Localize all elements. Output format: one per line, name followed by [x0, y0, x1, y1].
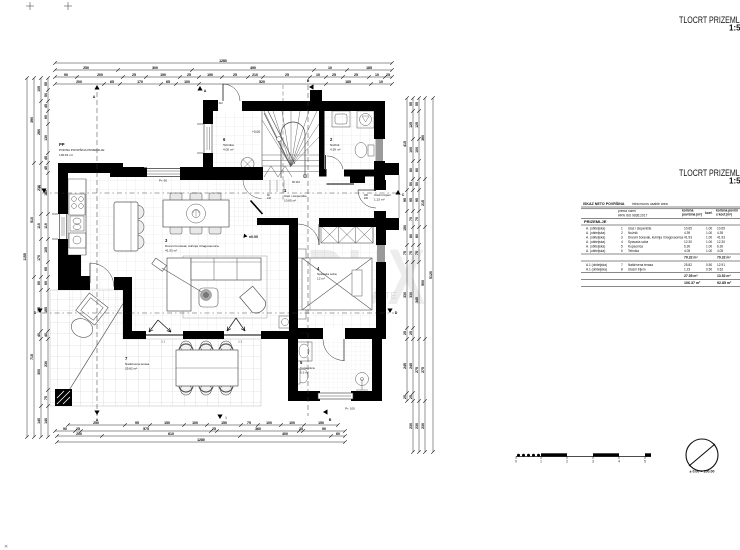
svg-text:1: 1 — [540, 460, 542, 464]
svg-text:±0.00: ±0.00 — [249, 235, 258, 239]
svg-text:4.39: 4.39 — [717, 231, 723, 235]
svg-text:75: 75 — [415, 251, 419, 255]
svg-text:1280: 1280 — [219, 59, 227, 63]
svg-text:90 210: 90 210 — [292, 180, 300, 184]
svg-text:Natkrivena terasa: Natkrivena terasa — [628, 263, 653, 267]
svg-text:0.62: 0.62 — [717, 268, 723, 272]
svg-text:± 0.00 = 100.00: ± 0.00 = 100.00 — [689, 470, 714, 474]
svg-text:55: 55 — [415, 102, 419, 106]
svg-text:105: 105 — [44, 247, 48, 253]
svg-text:C: C — [402, 193, 405, 197]
svg-text:intra muros usable area: intra muros usable area — [632, 202, 668, 206]
svg-text:230: 230 — [37, 185, 41, 191]
svg-text:1.23: 1.23 — [684, 268, 690, 272]
svg-text:25: 25 — [332, 73, 336, 77]
svg-text:170: 170 — [37, 255, 41, 261]
svg-text:4: 4 — [621, 240, 623, 244]
svg-text:A. (obiteljska): A. (obiteljska) — [586, 249, 605, 253]
svg-text:50: 50 — [44, 93, 48, 97]
svg-text:190: 190 — [207, 73, 213, 77]
svg-text:1.00: 1.00 — [706, 249, 712, 253]
svg-text:Tehnika: Tehnika — [223, 143, 234, 147]
svg-text:6.30: 6.30 — [717, 245, 723, 249]
svg-text:215: 215 — [421, 200, 425, 206]
svg-text:65: 65 — [44, 267, 48, 271]
svg-text:575: 575 — [143, 427, 149, 431]
svg-text:10: 10 — [375, 73, 379, 77]
svg-text:360: 360 — [255, 427, 261, 431]
svg-text:275: 275 — [421, 367, 425, 373]
svg-text:245: 245 — [403, 363, 407, 369]
svg-text:4.39: 4.39 — [684, 231, 690, 235]
svg-text:A. (obiteljska): A. (obiteljska) — [586, 245, 605, 249]
svg-text:6.3 m²: 6.3 m² — [300, 371, 309, 375]
svg-text:Tehnika: Tehnika — [628, 249, 639, 253]
svg-text:40: 40 — [37, 333, 41, 337]
svg-text:ISKAZ NETO POVRŠINA: ISKAZ NETO POVRŠINA — [583, 201, 625, 206]
svg-text:Ulaz i stepenište: Ulaz i stepenište — [284, 194, 307, 198]
svg-text:Natkrivena terasa: Natkrivena terasa — [125, 362, 150, 366]
svg-text:75: 75 — [44, 396, 48, 400]
svg-text:25: 25 — [233, 73, 237, 77]
svg-text:100: 100 — [184, 80, 190, 84]
svg-text:80: 80 — [409, 234, 413, 238]
svg-text:12.30: 12.30 — [684, 240, 692, 244]
svg-text:25: 25 — [409, 395, 413, 399]
svg-text:45: 45 — [44, 166, 48, 170]
svg-text:A. (obiteljska): A. (obiteljska) — [586, 240, 605, 244]
svg-text:A. (obiteljska): A. (obiteljska) — [586, 231, 605, 235]
svg-text:B: B — [329, 418, 332, 422]
svg-text:PP: PP — [59, 142, 65, 147]
svg-text:275: 275 — [415, 367, 419, 373]
svg-text:100: 100 — [266, 421, 272, 425]
svg-text:10.65 m²: 10.65 m² — [284, 199, 296, 203]
svg-text:✕: ✕ — [4, 544, 8, 550]
svg-text:150: 150 — [164, 421, 170, 425]
svg-text:150: 150 — [403, 225, 407, 231]
svg-text:500: 500 — [421, 280, 425, 286]
svg-text:Spavaća soba: Spavaća soba — [317, 272, 337, 276]
svg-text:koef.: koef. — [705, 211, 713, 215]
svg-text:25: 25 — [354, 73, 358, 77]
svg-text:170: 170 — [137, 80, 143, 84]
svg-text:2: 2 — [621, 231, 623, 235]
svg-text:1.00: 1.00 — [706, 227, 712, 231]
svg-text:Ulaz i stepenište: Ulaz i stepenište — [628, 227, 652, 231]
svg-text:1:50: 1:50 — [729, 24, 740, 33]
svg-text:200: 200 — [76, 432, 82, 436]
svg-text:280: 280 — [37, 129, 41, 135]
svg-text:510: 510 — [30, 217, 34, 223]
svg-text:80: 80 — [409, 168, 413, 172]
svg-text:715: 715 — [30, 354, 34, 360]
svg-text:1155: 1155 — [23, 253, 27, 261]
svg-text:415: 415 — [403, 141, 407, 147]
svg-text:110: 110 — [44, 223, 48, 229]
svg-text:230: 230 — [44, 361, 48, 367]
svg-text:5120: 5120 — [429, 271, 433, 279]
svg-text:240: 240 — [364, 197, 369, 200]
svg-text:100: 100 — [415, 147, 419, 153]
svg-text:HRN ISO 9836:2017: HRN ISO 9836:2017 — [618, 214, 647, 218]
svg-text:5: 5 — [621, 245, 623, 249]
svg-text:185: 185 — [37, 307, 41, 313]
svg-text:110: 110 — [37, 223, 41, 229]
svg-text:230: 230 — [421, 423, 425, 429]
svg-text:80: 80 — [415, 168, 419, 172]
svg-text:B: B — [307, 79, 310, 83]
svg-text:1.00: 1.00 — [706, 245, 712, 249]
svg-text:610: 610 — [168, 432, 174, 436]
svg-text:25: 25 — [285, 73, 289, 77]
svg-text:Ulazni trijem: Ulazni trijem — [628, 268, 646, 272]
svg-text:345: 345 — [415, 297, 419, 303]
svg-text:390: 390 — [30, 117, 34, 123]
svg-text:A: A — [93, 95, 96, 99]
svg-text:PODNA POVRŠINA PRIZEMLJE: PODNA POVRŠINA PRIZEMLJE — [59, 147, 104, 152]
svg-text:185: 185 — [44, 190, 48, 196]
svg-text:10: 10 — [316, 73, 320, 77]
svg-text:1: 1 — [225, 416, 227, 420]
svg-text:s koef.(m²): s koef.(m²) — [716, 213, 732, 217]
svg-text:0.50: 0.50 — [706, 268, 712, 272]
svg-text:4.05 m²: 4.05 m² — [223, 148, 234, 152]
svg-text:A: A — [204, 89, 207, 93]
svg-text:90: 90 — [322, 427, 326, 431]
svg-text:490: 490 — [250, 66, 256, 70]
svg-text:površina (m²): površina (m²) — [682, 213, 702, 217]
svg-text:+0.00: +0.00 — [252, 130, 260, 134]
svg-text:100: 100 — [409, 147, 413, 153]
svg-text:1.00: 1.00 — [706, 236, 712, 240]
svg-text:5: 5 — [644, 460, 646, 464]
svg-text:6: 6 — [621, 249, 623, 253]
svg-text:41.93: 41.93 — [717, 236, 725, 240]
svg-text:79.32 m²: 79.32 m² — [717, 256, 731, 260]
svg-text:10.65: 10.65 — [717, 227, 725, 231]
svg-text:3: 3 — [621, 236, 623, 240]
svg-text:Nužnik: Nužnik — [628, 231, 638, 235]
svg-text:25: 25 — [386, 73, 390, 77]
svg-text:1280: 1280 — [197, 438, 205, 442]
svg-text:95: 95 — [135, 421, 139, 425]
svg-text:60: 60 — [44, 281, 48, 285]
svg-text:185: 185 — [366, 66, 372, 70]
svg-text:25.82: 25.82 — [684, 263, 692, 267]
svg-text:1 1: 1 1 — [161, 340, 165, 344]
svg-text:210: 210 — [267, 197, 272, 200]
svg-text:100: 100 — [192, 421, 198, 425]
svg-text:140: 140 — [44, 418, 48, 424]
svg-text:50: 50 — [409, 182, 413, 186]
svg-text:Ulazni trijem: Ulazni trijem — [374, 193, 391, 197]
svg-text:25: 25 — [403, 331, 407, 335]
svg-text:Pr: 100: Pr: 100 — [345, 407, 355, 411]
svg-text:90 210: 90 210 — [215, 102, 223, 105]
svg-text:300: 300 — [37, 369, 41, 375]
svg-text:0.50: 0.50 — [706, 263, 712, 267]
svg-text:40: 40 — [44, 333, 48, 337]
svg-text:6.30: 6.30 — [684, 245, 690, 249]
svg-text:150: 150 — [318, 421, 324, 425]
svg-text:230: 230 — [409, 423, 413, 429]
svg-text:Kupaonica: Kupaonica — [300, 366, 315, 370]
svg-text:125: 125 — [409, 122, 413, 128]
svg-text:A.1 (obiteljska): A.1 (obiteljska) — [586, 268, 607, 272]
svg-text:60: 60 — [37, 281, 41, 285]
svg-text:2: 2 — [566, 460, 568, 464]
svg-text:1 1: 1 1 — [238, 340, 242, 344]
svg-text:41.93 m²: 41.93 m² — [165, 249, 177, 253]
svg-text:185: 185 — [44, 307, 48, 313]
svg-text:70: 70 — [409, 217, 413, 221]
svg-text:D: D — [395, 311, 398, 315]
svg-text:75: 75 — [403, 251, 407, 255]
svg-text:70: 70 — [415, 217, 419, 221]
svg-text:A. (obiteljska): A. (obiteljska) — [586, 236, 605, 240]
svg-text:4: 4 — [618, 460, 620, 464]
svg-text:80 210: 80 210 — [301, 332, 309, 335]
svg-text:95: 95 — [403, 198, 407, 202]
svg-text:330: 330 — [409, 292, 413, 298]
svg-text:A. (obiteljska): A. (obiteljska) — [586, 227, 605, 231]
svg-text:92.85 m²: 92.85 m² — [717, 281, 732, 285]
svg-text:Spavaća soba: Spavaća soba — [628, 240, 648, 244]
svg-text:60: 60 — [44, 115, 48, 119]
svg-text:245: 245 — [409, 363, 413, 369]
svg-text:1.00: 1.00 — [706, 240, 712, 244]
svg-text:50: 50 — [415, 182, 419, 186]
svg-text:4.05: 4.05 — [684, 249, 690, 253]
svg-text:55: 55 — [44, 82, 48, 86]
svg-text:360: 360 — [421, 135, 425, 141]
svg-text:95: 95 — [409, 198, 413, 202]
svg-text:185: 185 — [345, 80, 351, 84]
svg-text:10: 10 — [379, 80, 383, 84]
svg-text:250: 250 — [93, 421, 99, 425]
svg-text:65: 65 — [166, 80, 170, 84]
svg-text:400: 400 — [282, 432, 288, 436]
svg-text:12.30: 12.30 — [717, 240, 725, 244]
svg-text:25: 25 — [403, 395, 407, 399]
svg-text:1:50: 1:50 — [729, 177, 740, 186]
svg-text:3: 3 — [592, 460, 594, 464]
svg-text:520: 520 — [259, 80, 265, 84]
svg-text:230: 230 — [415, 423, 419, 429]
svg-text:250: 250 — [83, 66, 89, 70]
svg-text:90: 90 — [63, 427, 67, 431]
svg-text:150: 150 — [221, 421, 227, 425]
svg-text:75: 75 — [409, 251, 413, 255]
svg-text:Pr: 90: Pr: 90 — [159, 179, 167, 183]
svg-text:4.39 m²: 4.39 m² — [330, 148, 341, 152]
svg-text:60: 60 — [336, 432, 340, 436]
svg-text:Kupaonica: Kupaonica — [628, 245, 643, 249]
svg-text:200: 200 — [76, 80, 82, 84]
svg-text:10.65: 10.65 — [684, 227, 692, 231]
svg-text:Dnevni boravak, kuhinja i blag: Dnevni boravak, kuhinja i blagovaonica — [165, 244, 219, 248]
svg-text:45: 45 — [44, 104, 48, 108]
svg-text:330: 330 — [403, 292, 407, 298]
svg-text:Nužnik: Nužnik — [330, 143, 340, 147]
svg-text:12.91: 12.91 — [717, 263, 725, 267]
svg-text:140: 140 — [37, 418, 41, 424]
svg-text:8: 8 — [621, 268, 623, 272]
svg-text:25: 25 — [212, 427, 216, 431]
svg-text:1: 1 — [621, 227, 623, 231]
svg-text:75: 75 — [247, 421, 251, 425]
svg-text:25: 25 — [76, 427, 80, 431]
svg-text:1.00: 1.00 — [706, 231, 712, 235]
svg-text:65: 65 — [110, 80, 114, 84]
svg-text:130.81 m²: 130.81 m² — [59, 153, 73, 157]
svg-text:106.37 m²: 106.37 m² — [684, 281, 701, 285]
svg-text:45: 45 — [44, 156, 48, 160]
svg-text:95: 95 — [415, 198, 419, 202]
svg-text:25.82 m²: 25.82 m² — [125, 367, 137, 371]
svg-text:7: 7 — [621, 263, 623, 267]
svg-text:41.93: 41.93 — [684, 236, 692, 240]
svg-text:210: 210 — [252, 73, 258, 77]
svg-text:13.52 m²: 13.52 m² — [717, 274, 731, 278]
svg-text:90: 90 — [64, 73, 68, 77]
svg-text:200: 200 — [97, 73, 103, 77]
svg-text:A.1 (obiteljska): A.1 (obiteljska) — [586, 263, 607, 267]
svg-text:190: 190 — [160, 73, 166, 77]
svg-text:125: 125 — [415, 122, 419, 128]
svg-text:prema normi: prema normi — [618, 209, 636, 213]
svg-text:300: 300 — [152, 66, 158, 70]
svg-text:25: 25 — [409, 331, 413, 335]
svg-text:79.32 m²: 79.32 m² — [684, 256, 698, 260]
svg-text:12 m²: 12 m² — [317, 277, 325, 281]
svg-text:25: 25 — [187, 73, 191, 77]
svg-text:130: 130 — [44, 135, 48, 141]
svg-text:PRIZEMLJE: PRIZEMLJE — [584, 219, 607, 224]
svg-text:10: 10 — [328, 66, 332, 70]
svg-text:4.05: 4.05 — [717, 249, 723, 253]
svg-text:80: 80 — [415, 234, 419, 238]
svg-text:100: 100 — [289, 421, 295, 425]
svg-text:105: 105 — [37, 86, 41, 92]
svg-text:25: 25 — [299, 427, 303, 431]
svg-text:Dnevni boravak, kuhinja i blag: Dnevni boravak, kuhinja i blagovaonica — [628, 236, 684, 240]
svg-text:0: 0 — [515, 460, 517, 464]
svg-text:1.23 m²: 1.23 m² — [374, 198, 385, 202]
svg-text:25: 25 — [132, 73, 136, 77]
svg-text:27.05 m²: 27.05 m² — [684, 274, 698, 278]
svg-text:55: 55 — [409, 102, 413, 106]
